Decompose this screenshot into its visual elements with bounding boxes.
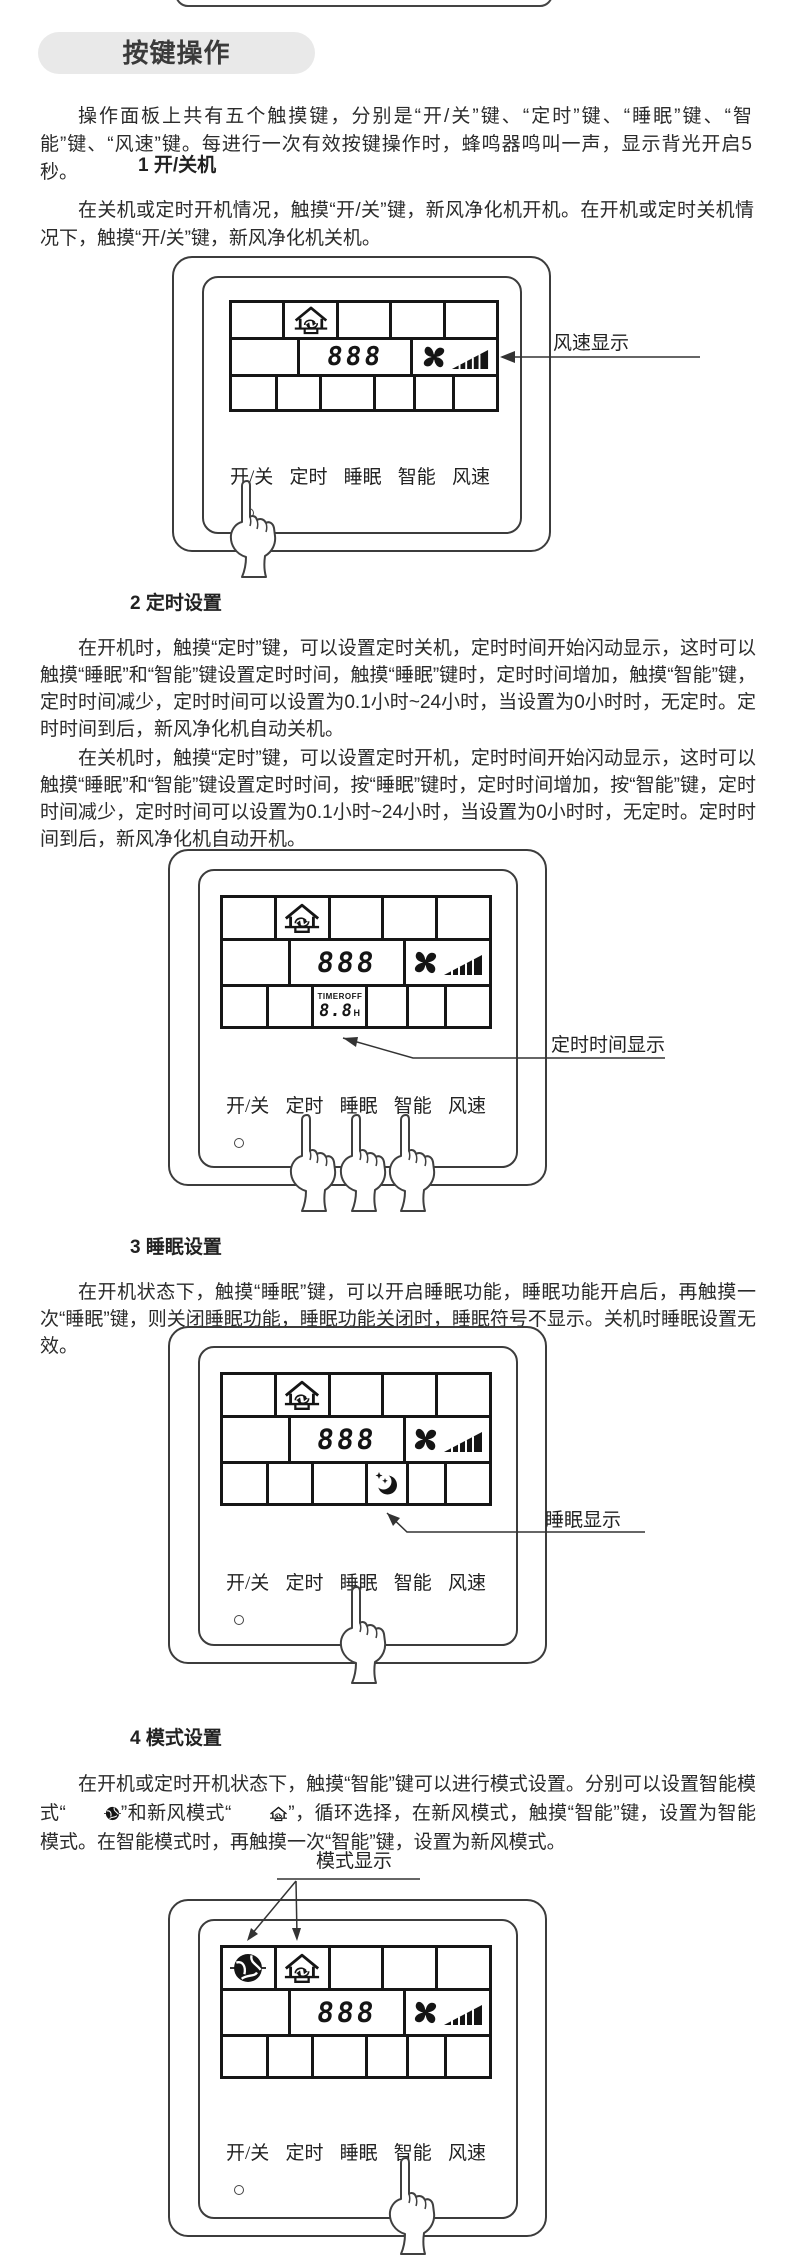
- mode-paragraph: 在开机或定时开机状态下，触摸“智能”键可以进行模式设置。分别可以设置智能模式“”…: [40, 1770, 756, 1857]
- lcd-blank-cell: [409, 1464, 445, 1503]
- lcd-blank-cell: [368, 2037, 406, 2076]
- lcd-timer-cell: TIMEROFF 8.8H: [314, 987, 365, 1026]
- pointing-hand-icon: [330, 1584, 390, 1684]
- heading-timer: 2 定时设置: [130, 588, 222, 615]
- key-smart: 智能: [398, 462, 436, 489]
- heading-mode: 4 模式设置: [130, 1723, 222, 1750]
- lcd-digits: 888: [300, 340, 411, 374]
- fresh-air-house-icon: [285, 303, 335, 337]
- lcd-blank-cell: [223, 1418, 288, 1461]
- lcd-fan-speed-cell: [406, 1991, 489, 2034]
- fan-icon: [412, 949, 439, 976]
- lcd-blank-cell: [438, 1375, 489, 1415]
- lcd-blank-cell: [392, 303, 442, 337]
- lcd-blank-cell: [278, 377, 319, 409]
- timer-state: OFF: [345, 992, 363, 1001]
- callout-timer-time: 定时时间显示: [551, 1030, 665, 1057]
- timer-value: 8.8: [318, 1001, 354, 1021]
- lcd-blank-cell: [269, 987, 311, 1026]
- heading-sleep: 3 睡眠设置: [130, 1232, 222, 1259]
- lcd-blank-cell: [314, 2037, 365, 2076]
- lcd-blank-cell: [232, 303, 282, 337]
- pointing-hand-icon: [379, 1112, 439, 1212]
- lcd-blank-cell: [232, 377, 275, 409]
- fresh-air-house-icon: [231, 1806, 288, 1822]
- lcd-blank-cell: [438, 1948, 489, 1988]
- key-fan-speed: 风速: [452, 462, 490, 489]
- lcd-blank-cell: [376, 377, 413, 409]
- lcd-blank-cell: [455, 377, 496, 409]
- lcd-blank-cell: [438, 898, 489, 938]
- lcd-blank-cell: [232, 340, 297, 374]
- pointing-hand-icon: [220, 478, 280, 578]
- lcd-fan-speed-cell: [406, 941, 489, 984]
- lcd-blank-cell: [223, 1464, 266, 1503]
- lcd-blank-cell: [223, 898, 274, 938]
- lcd-blank-cell: [223, 987, 266, 1026]
- fresh-air-house-icon: [277, 898, 328, 938]
- key-sleep: 睡眠: [340, 2138, 378, 2165]
- lcd-blank-cell: [314, 1464, 365, 1503]
- lcd-blank-cell: [409, 987, 445, 1026]
- key-power: 开/关: [226, 1568, 269, 1595]
- lcd-digits: 888: [291, 1418, 403, 1461]
- key-fan-speed: 风速: [448, 2138, 486, 2165]
- heading-power: 1 开/关机: [138, 150, 216, 177]
- fan-icon: [412, 1999, 439, 2026]
- lcd-blank-cell: [223, 1991, 288, 2034]
- lcd-sleep-cell: [368, 1464, 406, 1503]
- lcd-blank-cell: [416, 377, 452, 409]
- lcd-blank-cell: [269, 1464, 311, 1503]
- timer-unit: H: [354, 1008, 361, 1018]
- sleep-moon-icon: [374, 1471, 400, 1497]
- pointing-hand-icon: [379, 2155, 439, 2255]
- lcd-blank-cell: [322, 377, 373, 409]
- fan-speed-bars-icon: [451, 347, 489, 370]
- power-led-indicator: [234, 1615, 244, 1625]
- lcd-display: 888: [220, 1945, 492, 2079]
- lcd-blank-cell: [447, 1464, 489, 1503]
- key-sleep: 睡眠: [344, 462, 382, 489]
- timer-label: TIMER: [317, 992, 344, 1001]
- callout-sleep: 睡眠显示: [545, 1505, 621, 1532]
- lcd-blank-cell: [447, 2037, 489, 2076]
- fan-icon: [421, 344, 447, 370]
- lcd-blank-cell: [269, 2037, 311, 2076]
- fresh-air-house-icon: [277, 1948, 328, 1988]
- power-led-indicator: [234, 1138, 244, 1148]
- lcd-blank-cell: [223, 941, 288, 984]
- lcd-fan-speed-cell: [406, 1418, 489, 1461]
- smart-mode-icon: [223, 1948, 274, 1988]
- lcd-digits: 888: [291, 1991, 403, 2034]
- lcd-blank-cell: [331, 898, 382, 938]
- mode-text-2: ”和新风模式“: [121, 1803, 231, 1824]
- lcd-blank-cell: [446, 303, 496, 337]
- timer-paragraph-1: 在开机时，触摸“定时”键，可以设置定时关机，定时时间开始闪动显示，这时可以触摸“…: [40, 635, 756, 743]
- lcd-blank-cell: [409, 2037, 445, 2076]
- fan-speed-bars-icon: [443, 1429, 483, 1453]
- lcd-digits: 888: [291, 941, 403, 984]
- lcd-blank-cell: [368, 987, 406, 1026]
- key-fan-speed: 风速: [448, 1568, 486, 1595]
- timer-paragraph-2: 在关机时，触摸“定时”键，可以设置定时开机，定时时间开始闪动显示，这时可以触摸“…: [40, 745, 756, 853]
- lcd-blank-cell: [384, 898, 435, 938]
- lcd-display: 888: [229, 300, 499, 412]
- lcd-blank-cell: [384, 1375, 435, 1415]
- lcd-display: 888 TIMEROFF 8.8H: [220, 895, 492, 1029]
- lcd-blank-cell: [384, 1948, 435, 1988]
- fan-speed-bars-icon: [443, 2002, 483, 2026]
- lcd-blank-cell: [223, 2037, 266, 2076]
- callout-fan-speed: 风速显示: [553, 328, 629, 355]
- smart-mode-icon: [66, 1805, 121, 1822]
- fan-speed-bars-icon: [443, 952, 483, 976]
- key-smart: 智能: [394, 1568, 432, 1595]
- key-timer: 定时: [285, 2138, 323, 2165]
- fresh-air-house-icon: [277, 1375, 328, 1415]
- power-paragraph: 在关机或定时开机情况，触摸“开/关”键，新风净化机开机。在开机或定时关机情况下，…: [40, 197, 754, 253]
- fan-icon: [412, 1426, 439, 1453]
- power-led-indicator: [234, 2185, 244, 2195]
- lcd-fan-speed-cell: [413, 340, 496, 374]
- section-title-pill: 按键操作: [38, 32, 315, 74]
- previous-figure-fragment: [176, 0, 552, 6]
- lcd-blank-cell: [223, 1375, 274, 1415]
- key-fan-speed: 风速: [448, 1091, 486, 1118]
- lcd-blank-cell: [331, 1375, 382, 1415]
- lcd-display: 888: [220, 1372, 492, 1506]
- key-timer: 定时: [285, 1568, 323, 1595]
- key-power: 开/关: [226, 1091, 269, 1118]
- lcd-blank-cell: [447, 987, 489, 1026]
- control-panel-figure-4: 888 开/关 定时 睡眠 智能 风速: [168, 1899, 547, 2237]
- key-timer: 定时: [289, 462, 327, 489]
- lcd-blank-cell: [339, 303, 389, 337]
- callout-mode: 模式显示: [316, 1846, 392, 1873]
- lcd-blank-cell: [331, 1948, 382, 1988]
- key-power: 开/关: [226, 2138, 269, 2165]
